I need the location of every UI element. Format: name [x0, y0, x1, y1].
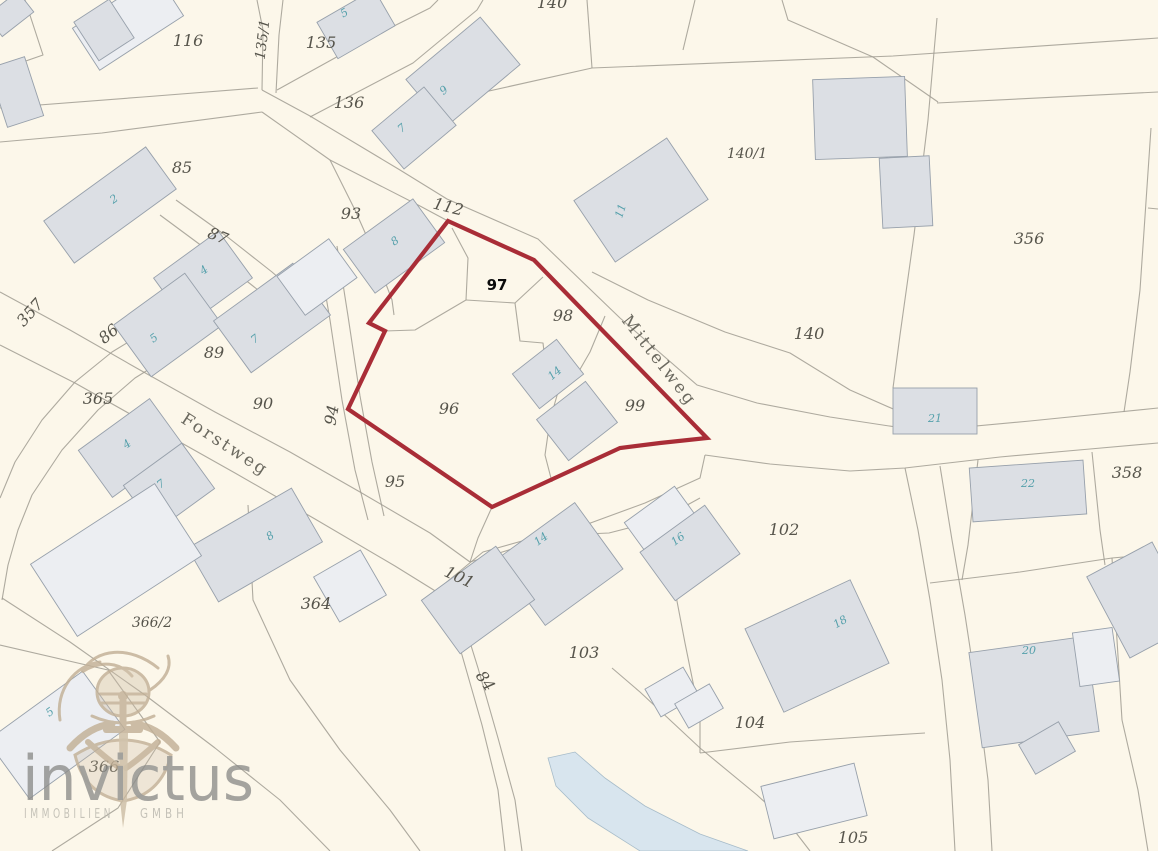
- parcel-label-140: 140: [794, 324, 825, 343]
- parcel-label-93: 93: [341, 204, 361, 223]
- logo-subtitle-left: IMMOBILIEN: [24, 807, 114, 822]
- parcel-label-104: 104: [735, 713, 766, 732]
- cadastral-map: 116135/1135136140140/1356859311287357868…: [0, 0, 1158, 851]
- building-number-label: 20: [1021, 644, 1036, 657]
- logo-wordmark: invictus: [22, 742, 254, 815]
- building: [893, 388, 977, 434]
- parcel-label-103: 103: [569, 643, 600, 662]
- parcel-label-89: 89: [204, 343, 224, 362]
- parcel-label-116: 116: [173, 31, 204, 50]
- parcel-label-140: 140: [537, 0, 568, 12]
- parcel-label-99: 99: [625, 396, 645, 415]
- parcel-label-365: 365: [83, 389, 114, 408]
- parcel-label-366-2: 366/2: [132, 615, 172, 631]
- parcel-label-95: 95: [385, 472, 405, 491]
- building-number-label: 22: [1020, 477, 1035, 490]
- building: [969, 460, 1086, 522]
- parcel-label-135: 135: [306, 33, 337, 52]
- parcel-label-358: 358: [1112, 463, 1143, 482]
- parcel-label-98: 98: [553, 306, 573, 325]
- parcel-label-136: 136: [334, 93, 365, 112]
- parcel-label-140-1: 140/1: [727, 146, 767, 162]
- map-canvas: 116135/1135136140140/1356859311287357868…: [0, 0, 1158, 851]
- building: [879, 156, 933, 229]
- parcel-label-90: 90: [253, 394, 273, 413]
- parcel-label-364: 364: [301, 594, 332, 613]
- building: [813, 76, 908, 159]
- building-number-label: 21: [927, 412, 942, 425]
- parcel-label-102: 102: [769, 520, 800, 539]
- parcel-label-105: 105: [838, 828, 869, 847]
- parcel-label-96: 96: [439, 399, 459, 418]
- highlighted-parcel-annotation: 97: [487, 276, 508, 294]
- parcel-label-94: 94: [320, 403, 342, 426]
- parcel-label-85: 85: [172, 158, 192, 177]
- building: [1072, 627, 1119, 686]
- logo-subtitle-right: GMBH: [140, 807, 188, 822]
- parcel-label-356: 356: [1014, 229, 1045, 248]
